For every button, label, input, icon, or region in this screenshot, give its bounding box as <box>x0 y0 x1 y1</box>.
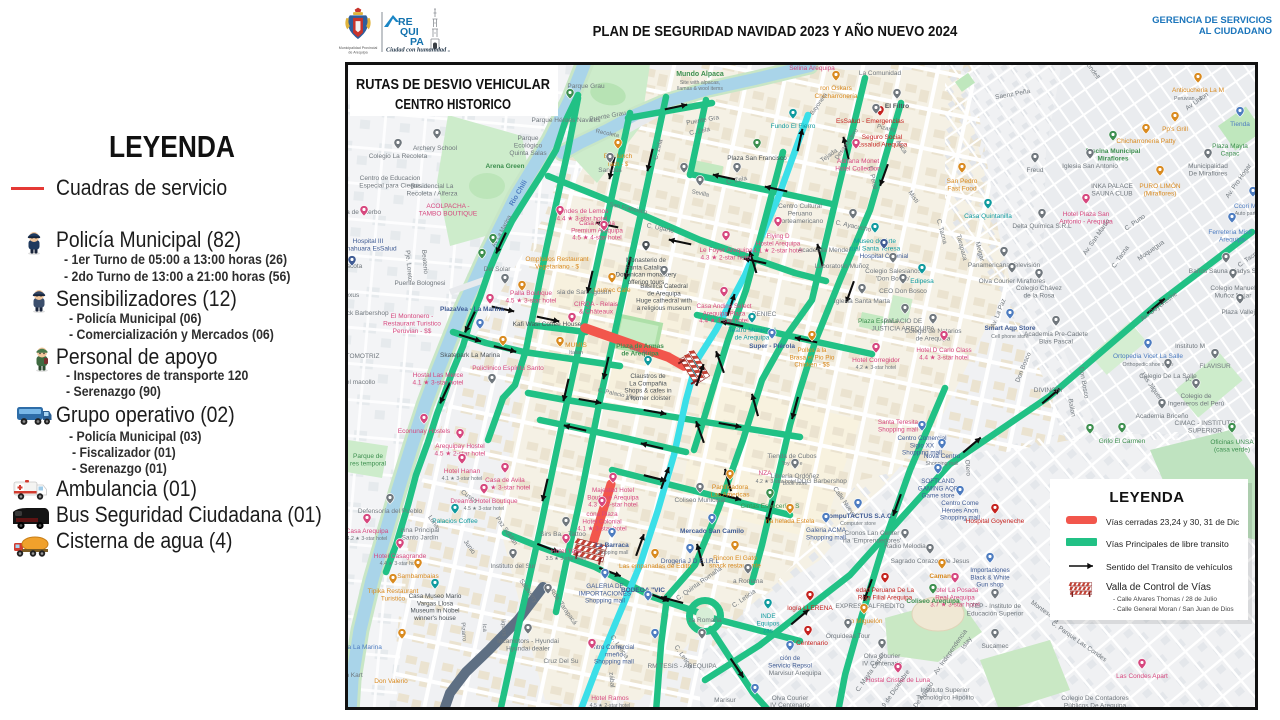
svg-text:Del Solar: Del Solar <box>484 266 512 273</box>
svg-text:Orquideas Tour: Orquideas Tour <box>826 633 871 640</box>
svg-text:Puente Bolognesi: Puente Bolognesi <box>395 280 446 287</box>
svg-text:Marisur: Marisur <box>714 697 737 704</box>
svg-text:4.1 ★ 3-star hotel: 4.1 ★ 3-star hotel <box>413 379 465 387</box>
svg-text:Plaza San Francisco: Plaza San Francisco <box>727 155 787 162</box>
svg-text:Le Foyer Arequipa: Le Foyer Arequipa <box>699 247 753 254</box>
svg-text:de Arequipa: de Arequipa <box>647 290 681 297</box>
svg-text:4.3 ★ 3-star hotel: 4.3 ★ 3-star hotel <box>588 502 637 509</box>
svg-text:Hospital Colonial: Hospital Colonial <box>860 253 909 260</box>
svg-text:Dominican monastery: Dominican monastery <box>616 272 678 279</box>
svg-text:Yanahuara EsSalud: Yanahuara EsSalud <box>345 246 397 253</box>
svg-text:CEO Don Bosco: CEO Don Bosco <box>879 288 927 295</box>
svg-text:PURO LIMÓN: PURO LIMÓN <box>1139 181 1180 190</box>
svg-text:AUTOMOTRIZ: AUTOMOTRIZ <box>345 353 379 360</box>
svg-text:TAMBO BOUTIQUE: TAMBO BOUTIQUE <box>419 211 478 218</box>
svg-text:CIRQA - Relais: CIRQA - Relais <box>574 301 619 308</box>
svg-text:CompuTACTUS S.A.C: CompuTACTUS S.A.C <box>824 513 892 520</box>
svg-text:Shops & cafes in: Shops & cafes in <box>624 388 672 395</box>
svg-text:Peruvian - $$: Peruvian - $$ <box>393 328 432 335</box>
svg-text:Iglesia San Antonio: Iglesia San Antonio <box>1062 163 1118 170</box>
svg-text:Huge cathedral with: Huge cathedral with <box>636 298 692 305</box>
svg-text:4.4 ★ 4-star hotel: 4.4 ★ 4-star hotel <box>699 318 748 325</box>
svg-text:Hotel Colonial: Hotel Colonial <box>582 518 621 525</box>
svg-text:Hospital Goyeneche: Hospital Goyeneche <box>966 518 1025 525</box>
svg-text:GAMING AQP: GAMING AQP <box>918 485 958 492</box>
svg-text:Gun shop: Gun shop <box>976 582 1004 589</box>
svg-text:Parque Grau: Parque Grau <box>567 83 605 90</box>
svg-text:La Comunidad: La Comunidad <box>859 70 902 77</box>
svg-text:llamas & wool items: llamas & wool items <box>677 86 723 92</box>
svg-text:Museo de Arte: Museo de Arte <box>854 238 896 245</box>
svg-text:4.1 ★ 3-star hotel: 4.1 ★ 3-star hotel <box>442 476 483 482</box>
svg-text:Hotel Hanan: Hotel Hanan <box>444 468 481 475</box>
svg-text:El Filtro: El Filtro <box>885 103 909 110</box>
svg-text:Skatepark La Marina: Skatepark La Marina <box>440 352 500 359</box>
svg-text:Hotel Ramos: Hotel Ramos <box>591 695 629 702</box>
svg-text:Arequipay Hostel: Arequipay Hostel <box>435 443 485 450</box>
svg-text:PlazaVea - La Marina: PlazaVea - La Marina <box>440 306 504 313</box>
svg-text:Santa Teresita: Santa Teresita <box>878 419 919 426</box>
svg-text:FLAVISUR: FLAVISUR <box>1199 363 1231 370</box>
svg-text:Edipesa: Edipesa <box>910 278 934 285</box>
svg-text:de Arequipa: de Arequipa <box>348 51 367 55</box>
svg-text:Equipos: Equipos <box>757 620 780 627</box>
svg-text:Colegio de Notarios: Colegio de Notarios <box>904 328 962 335</box>
svg-text:Academia Pre-Cadete: Academia Pre-Cadete <box>1024 331 1088 338</box>
svg-text:Shopping mall: Shopping mall <box>596 550 629 556</box>
svg-text:Casa Arequipa: Casa Arequipa <box>346 528 389 535</box>
svg-text:Pollos a la: Pollos a la <box>797 347 827 354</box>
svg-text:4.1 ★ 2-star hotel: 4.1 ★ 2-star hotel <box>753 248 802 255</box>
svg-text:Ica: Ica <box>481 624 488 633</box>
svg-text:Vargas Llosa: Vargas Llosa <box>417 600 454 607</box>
svg-text:Hostel Arequipa: Hostel Arequipa <box>756 240 801 247</box>
svg-text:sia de San Agustín: sia de San Agustín <box>557 289 612 296</box>
svg-text:Hospital III: Hospital III <box>353 238 384 245</box>
svg-text:DIVINCRI: DIVINCRI <box>1034 387 1063 394</box>
svg-text:tual Santa Teresa: tual Santa Teresa <box>850 246 901 253</box>
svg-text:Selina Arequipa: Selina Arequipa <box>789 65 835 72</box>
svg-text:Majestad Hotel: Majestad Hotel <box>592 487 634 494</box>
svg-text:Shopping mall: Shopping mall <box>902 450 942 457</box>
svg-text:Hotel Corregidor: Hotel Corregidor <box>852 357 901 364</box>
svg-text:Centro Cultural: Centro Cultural <box>778 203 822 210</box>
svg-text:Adriana Monet: Adriana Monet <box>837 158 879 165</box>
svg-text:Centro Come: Centro Come <box>941 500 979 507</box>
svg-text:Premium Arequipa: Premium Arequipa <box>571 227 623 234</box>
svg-text:4.5 ★ 4-star hotel: 4.5 ★ 4-star hotel <box>572 235 621 242</box>
svg-text:Santo Jardín: Santo Jardín <box>402 535 439 542</box>
svg-text:Plaza Mayta: Plaza Mayta <box>1212 143 1248 150</box>
svg-text:El Montonero -: El Montonero - <box>391 313 434 320</box>
svg-text:Vegetariano - $: Vegetariano - $ <box>535 264 579 271</box>
svg-text:4.5 ★ 3-star hotel: 4.5 ★ 3-star hotel <box>506 297 558 305</box>
svg-text:Hotel Yara: Hotel Yara <box>551 548 581 555</box>
svg-text:Valla de Control de Vías: Valla de Control de Vías <box>1106 582 1211 593</box>
svg-text:Centro de Educacion: Centro de Educacion <box>360 175 421 182</box>
svg-text:4.3 ★ 2-star hotel: 4.3 ★ 2-star hotel <box>701 254 753 262</box>
svg-text:EXPRESO ALFREDITO: EXPRESO ALFREDITO <box>835 603 904 610</box>
svg-text:Ingenieros del Perú: Ingenieros del Perú <box>1168 401 1225 408</box>
svg-text:INKA PALACE: INKA PALACE <box>1091 183 1133 190</box>
svg-text:Mercado San Camilo: Mercado San Camilo <box>680 528 744 535</box>
svg-text:Anticucheria La M: Anticucheria La M <box>1172 87 1224 94</box>
svg-text:Parque de: Parque de <box>353 453 383 460</box>
svg-text:Freud: Freud <box>1027 167 1044 174</box>
svg-text:- Calle General Moran / San Ju: - Calle General Moran / San Juan de Dios <box>1113 606 1234 613</box>
svg-text:DDG Barbershop: DDG Barbershop <box>797 478 847 485</box>
svg-text:Colegio Salesianos: Colegio Salesianos <box>865 268 921 275</box>
svg-text:ntro Comercial: ntro Comercial <box>594 644 635 651</box>
svg-text:LEYENDA: LEYENDA <box>1109 489 1184 506</box>
svg-text:Computer store: Computer store <box>840 521 876 527</box>
svg-text:INDE: INDE <box>760 613 775 620</box>
svg-text:CENTRO HISTORICO: CENTRO HISTORICO <box>395 97 511 113</box>
svg-text:Muñoz Najar: Muñoz Najar <box>1215 293 1253 300</box>
svg-text:Policlinico Espíritu Santo: Policlinico Espíritu Santo <box>472 365 544 372</box>
svg-text:& Châteaux: & Châteaux <box>579 309 614 316</box>
svg-text:Sentido del Transito de vehícu: Sentido del Transito de vehículos <box>1106 562 1233 572</box>
svg-text:Pp's Grill: Pp's Grill <box>1162 126 1188 133</box>
svg-text:4.5 ★ 3-star hotel: 4.5 ★ 3-star hotel <box>464 506 505 512</box>
svg-text:RM TESIS - AREQUIPA: RM TESIS - AREQUIPA <box>647 663 717 670</box>
svg-text:Oficinas UNSA: Oficinas UNSA <box>1210 439 1254 446</box>
svg-text:Chicharroneria Patty: Chicharroneria Patty <box>1116 138 1176 145</box>
svg-text:Black & White: Black & White <box>970 574 1010 581</box>
svg-text:Tienda: Tienda <box>1230 121 1250 128</box>
svg-text:Miraflores: Miraflores <box>1097 156 1128 163</box>
svg-text:Shopping mall: Shopping mall <box>585 598 625 605</box>
svg-text:Colegio Chávez: Colegio Chávez <box>1016 285 1062 292</box>
svg-text:Galeria ACMA: Galeria ACMA <box>806 527 847 534</box>
svg-text:Monasterio de: Monasterio de <box>626 257 666 264</box>
svg-text:Instituto M: Instituto M <box>1175 343 1205 350</box>
svg-text:4.4 ★ 3-star hotel: 4.4 ★ 3-star hotel <box>919 354 968 361</box>
svg-text:logía LLERENA: logía LLERENA <box>787 605 833 612</box>
svg-text:4.2 ★ 3-star hotel: 4.2 ★ 3-star hotel <box>347 536 388 542</box>
svg-text:Black Barbershop: Black Barbershop <box>345 310 389 317</box>
svg-text:Hotel D Carlo Class: Hotel D Carlo Class <box>916 347 971 354</box>
svg-text:Colegio Manuel: Colegio Manuel <box>1210 285 1256 292</box>
svg-text:Capac: Capac <box>1221 151 1241 158</box>
svg-text:Casa Andina Select: Casa Andina Select <box>697 303 752 310</box>
svg-text:GALERIA DE: GALERIA DE <box>586 583 623 590</box>
svg-text:Colegio La Recoleta: Colegio La Recoleta <box>369 153 428 160</box>
svg-text:a del macollo: a del macollo <box>345 379 376 386</box>
svg-text:Academia Briceño: Academia Briceño <box>1136 413 1189 420</box>
svg-text:winner's house: winner's house <box>413 615 456 622</box>
svg-text:Palla Boutique: Palla Boutique <box>510 290 552 297</box>
svg-text:Auto parts store: Auto parts store <box>1235 211 1258 217</box>
svg-text:Ecológico: Ecológico <box>514 143 543 150</box>
svg-text:ACOLPACHA -: ACOLPACHA - <box>426 203 469 210</box>
svg-text:Hostal Las Merce: Hostal Las Merce <box>413 372 464 379</box>
svg-text:Coliseo Arequipa: Coliseo Arequipa <box>906 598 960 605</box>
svg-text:Arena Green: Arena Green <box>485 163 524 170</box>
svg-text:Archery School: Archery School <box>413 145 458 152</box>
svg-text:Ciudad con humanidad ...: Ciudad con humanidad ... <box>386 47 450 54</box>
svg-text:Residencial La: Residencial La <box>411 183 454 190</box>
svg-text:za Romaña: za Romaña <box>688 617 722 624</box>
svg-text:Sucamec: Sucamec <box>981 643 1009 650</box>
svg-text:Olva Courier Miraflores: Olva Courier Miraflores <box>979 278 1047 285</box>
svg-text:Hotel Plaza San: Hotel Plaza San <box>1063 211 1110 218</box>
svg-text:Dreams Hotel Boutique: Dreams Hotel Boutique <box>450 498 518 505</box>
svg-text:Omphalos Restaurant: Omphalos Restaurant <box>525 256 588 263</box>
svg-text:De Miraflores: De Miraflores <box>1189 171 1228 178</box>
svg-text:Super - Piérola: Super - Piérola <box>749 343 795 350</box>
svg-text:Mundo Alpaca: Mundo Alpaca <box>676 71 724 78</box>
svg-text:Italian: Italian <box>569 350 583 356</box>
svg-text:rmeño: rmeño <box>605 651 623 658</box>
svg-text:Arequipa Plaza: Arequipa Plaza <box>703 310 746 317</box>
svg-text:Roja Filial Arequipa: Roja Filial Arequipa <box>858 594 913 601</box>
svg-text:Marvisur Arequipa: Marvisur Arequipa <box>769 670 822 677</box>
svg-text:Fundo El Fierro: Fundo El Fierro <box>771 123 816 130</box>
svg-text:Radio Melodia: Radio Melodia <box>884 543 926 550</box>
svg-text:res temporal: res temporal <box>350 461 387 468</box>
svg-text:Baños Sauna Gladys Spa: Baños Sauna Gladys Spa <box>1189 268 1258 275</box>
svg-text:Basílica Catedral: Basílica Catedral <box>640 283 688 290</box>
svg-text:a Romana: a Romana <box>733 578 763 585</box>
svg-text:(Miraflores): (Miraflores) <box>1144 191 1177 198</box>
svg-text:Servicio Repsol: Servicio Repsol <box>768 662 812 669</box>
svg-text:SUPERIOR: SUPERIOR <box>1188 428 1222 435</box>
svg-text:a religious museum: a religious museum <box>637 305 692 312</box>
svg-text:Shopping mall: Shopping mall <box>878 426 918 433</box>
svg-text:(casa verde): (casa verde) <box>1214 447 1250 454</box>
svg-text:Plaza Vallejo: Plaza Vallejo <box>1221 309 1258 316</box>
svg-text:ría helada Estela: ría helada Estela <box>766 518 815 525</box>
svg-text:ITEP - Instituto de: ITEP - Instituto de <box>969 603 1021 610</box>
svg-text:Seguro Social: Seguro Social <box>862 134 903 141</box>
svg-text:Restaurant Turistico: Restaurant Turistico <box>383 321 441 328</box>
svg-text:de Arequipa: de Arequipa <box>735 335 770 342</box>
svg-text:Casa Quintanilla: Casa Quintanilla <box>964 213 1012 220</box>
svg-text:Siglo XX: Siglo XX <box>910 442 935 449</box>
svg-text:Delta Química S.R.L: Delta Química S.R.L <box>1012 223 1072 230</box>
svg-text:Iglesia Santa Marta: Iglesia Santa Marta <box>834 298 890 305</box>
svg-text:Game store: Game store <box>922 493 955 500</box>
svg-text:Hotel La Posada: Hotel La Posada <box>932 587 979 594</box>
svg-text:RUTAS DE DESVIO VEHICULAR: RUTAS DE DESVIO VEHICULAR <box>356 77 550 93</box>
svg-text:Cronos Lan Center: Cronos Lan Center <box>845 530 901 537</box>
svg-text:Colegio De Contadores: Colegio De Contadores <box>1061 695 1129 702</box>
svg-text:Importaciones: Importaciones <box>970 567 1010 574</box>
svg-text:Museum in Nobel: Museum in Nobel <box>411 608 460 615</box>
svg-text:Municipalidad Provincial: Municipalidad Provincial <box>339 46 378 50</box>
svg-text:Don Valerio: Don Valerio <box>374 678 408 685</box>
svg-text:Casa Andina: Casa Andina <box>579 220 615 227</box>
svg-text:San Jos: San Jos <box>598 167 622 174</box>
svg-text:edad Peruana De La: edad Peruana De La <box>856 587 915 594</box>
svg-text:La Compañia: La Compañia <box>629 380 667 387</box>
svg-text:Fast Food: Fast Food <box>947 186 977 193</box>
svg-text:- Calle Alvares Thomas / 28 de: - Calle Alvares Thomas / 28 de Julio <box>1113 596 1217 603</box>
svg-text:ron Oskars: ron Oskars <box>820 85 853 92</box>
svg-text:Ortopedia Vicet La Salle: Ortopedia Vicet La Salle <box>1113 353 1183 360</box>
svg-text:Chicken - $$: Chicken - $$ <box>794 362 830 369</box>
svg-text:San Pedro: San Pedro <box>947 178 978 185</box>
svg-text:Sagrado Corazon de Jesus: Sagrado Corazon de Jesus <box>891 558 971 565</box>
svg-text:PALACIO DE: PALACIO DE <box>884 318 923 325</box>
svg-text:cina Principal: cina Principal <box>401 527 440 534</box>
svg-text:cona Plaza: cona Plaza <box>586 511 618 518</box>
svg-text:Las Americas: Las Americas <box>710 492 750 499</box>
svg-text:Rincon El Gato: Rincon El Gato <box>713 555 757 562</box>
svg-text:Vías Principales de libre tran: Vías Principales de libre transito <box>1106 539 1229 549</box>
svg-text:La Barraca: La Barraca <box>595 542 629 549</box>
svg-text:SOFTLAND: SOFTLAND <box>921 478 955 485</box>
svg-text:de la Rosa: de la Rosa <box>1023 293 1054 300</box>
svg-text:Municipalidad: Municipalidad <box>1188 163 1228 170</box>
svg-text:Ferreteria Misti -: Ferreteria Misti - <box>1208 229 1255 236</box>
svg-text:zas: zas <box>763 628 773 635</box>
svg-text:SAUNA CLUB: SAUNA CLUB <box>1091 191 1132 198</box>
svg-text:zábal: zábal <box>607 672 615 689</box>
svg-text:Tipika Restaurant: Tipika Restaurant <box>368 588 419 595</box>
svg-text:la La Marina: la La Marina <box>346 644 382 651</box>
svg-text:EsSalud - Emergencias: EsSalud - Emergencias <box>836 118 905 125</box>
svg-text:Shopping mall: Shopping mall <box>806 534 846 541</box>
svg-text:Peruano: Peruano <box>788 211 813 218</box>
svg-text:Colegio de: Colegio de <box>1180 393 1211 400</box>
svg-text:Instituto del Sur: Instituto del Sur <box>490 563 536 570</box>
svg-text:ción de: ción de <box>780 655 801 662</box>
svg-text:IMPORTACIONES: IMPORTACIONES <box>579 590 631 597</box>
svg-text:Educación Superior: Educación Superior <box>967 611 1025 618</box>
svg-text:Academia Mendel: Academia Mendel <box>798 247 851 254</box>
svg-text:Recoleta / Alferza: Recoleta / Alferza <box>407 191 458 198</box>
svg-text:4.2 ★ 3-star hotel: 4.2 ★ 3-star hotel <box>856 365 897 371</box>
svg-text:Shopping mall: Shopping mall <box>594 659 634 666</box>
svg-text:CIMAC - INSTITUTO: CIMAC - INSTITUTO <box>1175 420 1236 427</box>
svg-text:Norteamericano: Norteamericano <box>777 218 824 225</box>
svg-text:Flying D: Flying D <box>766 233 790 240</box>
svg-text:Olva Courier: Olva Courier <box>772 695 809 702</box>
svg-text:Blas Pascal: Blas Pascal <box>1039 339 1074 346</box>
svg-text:Laboratorio Muñoz: Laboratorio Muñoz <box>815 263 869 270</box>
svg-text:Vías cerradas 23,24 y 30, 31 d: Vías cerradas 23,24 y 30, 31 de Dic <box>1106 517 1239 527</box>
svg-text:Incamotors - Hyundai: Incamotors - Hyundai <box>497 638 559 645</box>
svg-text:Héroes Anon: Héroes Anon <box>942 507 979 514</box>
svg-text:Turistico: Turistico <box>381 596 406 603</box>
svg-text:Boutique Arequipa: Boutique Arequipa <box>587 494 639 501</box>
svg-text:Cell phone store: Cell phone store <box>991 334 1029 340</box>
svg-text:MUMIS: MUMIS <box>565 342 587 349</box>
svg-text:Arequipa: Arequipa <box>1219 237 1245 244</box>
svg-text:3.5 ★ 3-star hotel: 3.5 ★ 3-star hotel <box>546 556 587 562</box>
svg-text:Claustros de: Claustros de <box>630 373 666 380</box>
svg-text:Otero: Otero <box>963 459 971 476</box>
svg-text:Grifo El Carmen: Grifo El Carmen <box>1099 438 1146 445</box>
svg-text:Las Condes Apart: Las Condes Apart <box>1116 673 1168 680</box>
svg-text:Panamericana Televisión: Panamericana Televisión <box>968 262 1041 269</box>
svg-text:Brasa el Pio Pio: Brasa el Pio Pio <box>790 354 835 361</box>
svg-text:Casa de Avila: Casa de Avila <box>485 477 525 484</box>
svg-text:Econunay Hostels: Econunay Hostels <box>398 428 451 435</box>
svg-text:Parque: Parque <box>518 135 539 142</box>
svg-text:Panificadora: Panificadora <box>712 484 749 491</box>
svg-text:Hyundai dealer: Hyundai dealer <box>506 646 551 653</box>
svg-text:Ccori Motor's: Ccori Motor's <box>1234 203 1258 210</box>
svg-text:Quinta Salas: Quinta Salas <box>509 150 547 157</box>
svg-text:Site with alpacas,: Site with alpacas, <box>680 80 720 86</box>
svg-text:Cruz Del Su: Cruz Del Su <box>543 658 578 665</box>
